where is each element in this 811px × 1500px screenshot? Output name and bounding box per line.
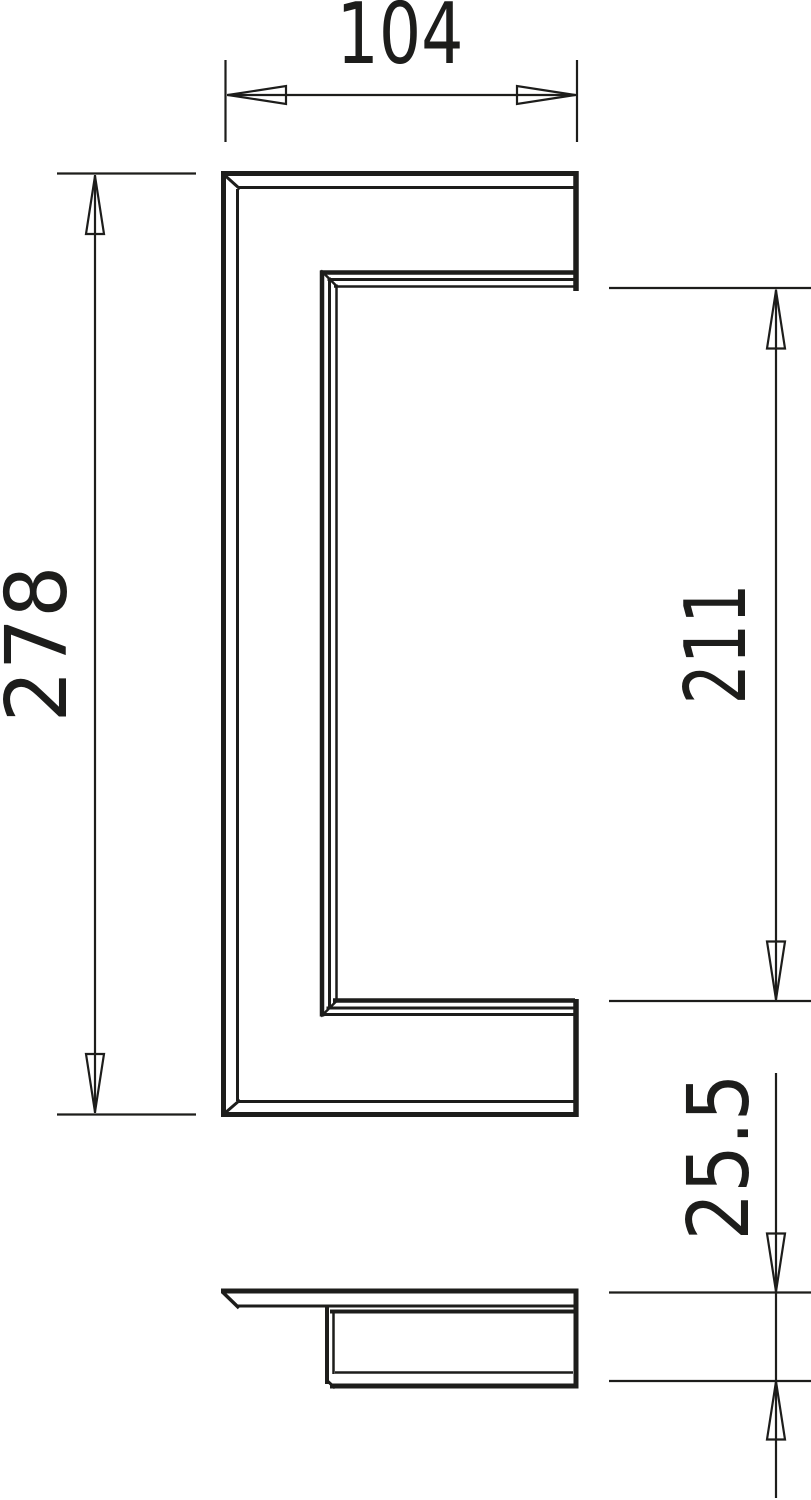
height-dim-label: 278 xyxy=(0,566,87,723)
front-view xyxy=(221,171,578,1117)
dimension-width: 104 xyxy=(226,0,578,142)
opening-dim-label: 211 xyxy=(667,584,766,705)
front-view-chamfer-lines xyxy=(225,176,576,1114)
bottom-view xyxy=(221,1289,579,1389)
width-dim-label: 104 xyxy=(337,0,464,84)
dimension-overall-height: 278 xyxy=(0,174,196,1115)
depth-dim-label: 25.5 xyxy=(670,1074,769,1241)
drawing-canvas: 104 278 211 25.5 xyxy=(0,0,811,1500)
front-view-outer-contour xyxy=(221,171,578,1117)
front-view-inner-opening xyxy=(320,271,576,1017)
bottom-left-corner-chamfer xyxy=(225,1100,240,1113)
dimension-depth: 25.5 xyxy=(609,1073,811,1498)
technical-drawing: 104 278 211 25.5 xyxy=(0,0,811,1500)
dimension-opening-height: 211 xyxy=(609,288,811,1001)
top-left-corner-chamfer xyxy=(225,176,240,190)
plate-left-taper xyxy=(223,1293,239,1309)
